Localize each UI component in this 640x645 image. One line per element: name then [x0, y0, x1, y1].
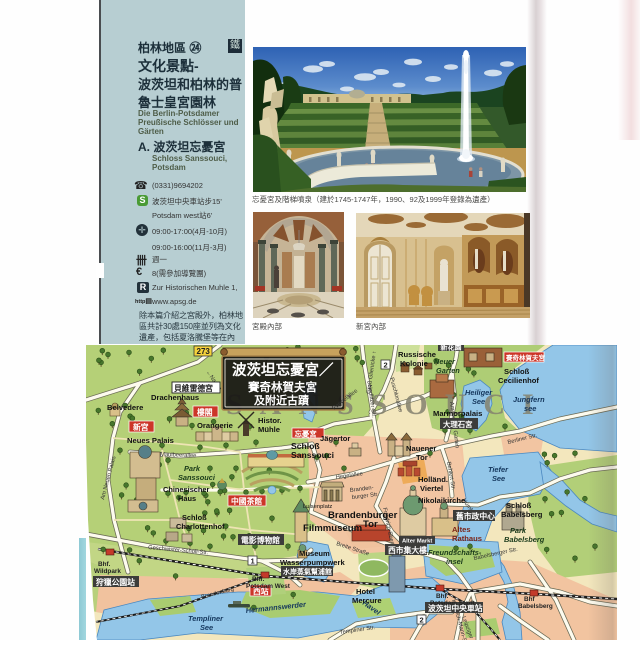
svg-text:水岸蒸氣幫浦館: 水岸蒸氣幫浦館	[283, 567, 332, 576]
svg-text:Alter Markt: Alter Markt	[402, 539, 432, 545]
svg-text:Bhf: Bhf	[524, 596, 536, 603]
svg-text:新宮: 新宮	[133, 422, 149, 432]
svg-text:新花園: 新花園	[441, 345, 462, 352]
svg-text:Sanssouci: Sanssouci	[178, 473, 216, 482]
svg-text:Belvedere: Belvedere	[107, 403, 143, 412]
svg-text:Museum: Museum	[299, 549, 330, 558]
svg-text:Wasserpumpwerk: Wasserpumpwerk	[280, 558, 345, 567]
svg-text:Maulbeerallee: Maulbeerallee	[160, 452, 197, 459]
svg-text:Bhf.: Bhf.	[98, 561, 111, 568]
svg-text:2: 2	[384, 361, 388, 370]
svg-text:Potsdam West: Potsdam West	[246, 583, 291, 590]
svg-text:See: See	[492, 474, 505, 483]
svg-text:賽奇林賀夫宮: 賽奇林賀夫宮	[505, 353, 546, 362]
svg-text:Freundschafts-: Freundschafts-	[428, 548, 482, 557]
svg-text:電影博物館: 電影博物館	[241, 535, 280, 545]
svg-text:Babelsberg: Babelsberg	[518, 603, 553, 610]
svg-text:舊市政中心: 舊市政中心	[456, 511, 495, 521]
svg-text:Russische: Russische	[398, 350, 436, 359]
svg-text:Bhf.: Bhf.	[436, 593, 449, 600]
svg-text:273: 273	[197, 347, 211, 356]
svg-text:Potsdam Stadt: Potsdam Stadt	[430, 600, 476, 607]
svg-text:狩獵公園站: 狩獵公園站	[95, 577, 135, 587]
svg-text:Marmorpalais: Marmorpalais	[433, 409, 482, 418]
svg-text:賽奇林賀夫宮: 賽奇林賀夫宮	[247, 380, 317, 394]
svg-text:樓閣: 樓閣	[197, 407, 213, 417]
svg-text:Kolonie: Kolonie	[400, 359, 428, 368]
svg-text:Schloß: Schloß	[506, 501, 532, 510]
svg-text:insel: insel	[446, 557, 464, 566]
svg-text:Wildpark: Wildpark	[94, 568, 121, 575]
svg-text:2: 2	[420, 616, 424, 625]
svg-text:Heiliger: Heiliger	[465, 388, 493, 397]
svg-text:Neues Palais: Neues Palais	[127, 436, 174, 445]
svg-text:Bhf.: Bhf.	[252, 576, 265, 583]
svg-text:及附近古蹟: 及附近古蹟	[254, 393, 310, 407]
svg-text:See: See	[200, 623, 213, 632]
svg-text:Drachenhaus: Drachenhaus	[151, 393, 199, 402]
svg-text:Tiefer: Tiefer	[488, 465, 509, 474]
svg-text:Tor: Tor	[363, 519, 378, 530]
svg-text:Garten: Garten	[436, 366, 460, 375]
svg-text:Templiner: Templiner	[188, 614, 224, 623]
svg-text:Park: Park	[184, 464, 201, 473]
svg-text:See: See	[472, 397, 485, 406]
svg-text:Jungfern: Jungfern	[513, 395, 545, 404]
svg-text:Jägertor: Jägertor	[320, 434, 350, 443]
svg-text:西市集大樓: 西市集大樓	[388, 545, 427, 555]
svg-text:Nauener: Nauener	[406, 444, 436, 453]
svg-text:Filmmuseum: Filmmuseum	[303, 523, 362, 534]
svg-text:Hotel: Hotel	[356, 587, 375, 596]
svg-text:Haus: Haus	[178, 494, 196, 503]
svg-text:Babelsberg: Babelsberg	[501, 510, 543, 519]
svg-text:中國茶館: 中國茶館	[231, 496, 262, 506]
svg-text:大理石宮: 大理石宮	[443, 420, 473, 429]
svg-text:Schloß: Schloß	[504, 367, 530, 376]
svg-text:Cecilienhof: Cecilienhof	[498, 376, 539, 385]
svg-text:1: 1	[251, 557, 255, 566]
svg-text:Histor.: Histor.	[258, 416, 282, 425]
svg-text:Schloß: Schloß	[182, 513, 207, 522]
svg-text:Viertel: Viertel	[420, 484, 443, 493]
svg-text:Neuer: Neuer	[434, 357, 456, 366]
svg-text:Park: Park	[510, 526, 527, 535]
svg-text:Nikolaikirche: Nikolaikirche	[418, 496, 465, 505]
svg-text:Rathaus: Rathaus	[452, 534, 482, 543]
svg-text:Holländ.: Holländ.	[418, 475, 448, 484]
svg-text:忘憂宮: 忘憂宮	[295, 430, 317, 439]
svg-text:see: see	[524, 404, 536, 413]
svg-text:Orangerie: Orangerie	[197, 421, 233, 430]
svg-text:貝維雷德宮: 貝維雷德宮	[174, 383, 213, 393]
svg-text:Sanssouci: Sanssouci	[291, 450, 334, 460]
svg-text:Chinesischer: Chinesischer	[163, 485, 210, 494]
svg-text:Babelsberg: Babelsberg	[504, 535, 545, 544]
svg-text:波茨坦忘憂宮／: 波茨坦忘憂宮／	[232, 361, 334, 379]
svg-text:Tor: Tor	[416, 453, 428, 462]
svg-text:Mühle: Mühle	[258, 425, 280, 434]
svg-text:Altes: Altes	[452, 525, 471, 534]
svg-text:Charlottenhof: Charlottenhof	[176, 522, 225, 531]
